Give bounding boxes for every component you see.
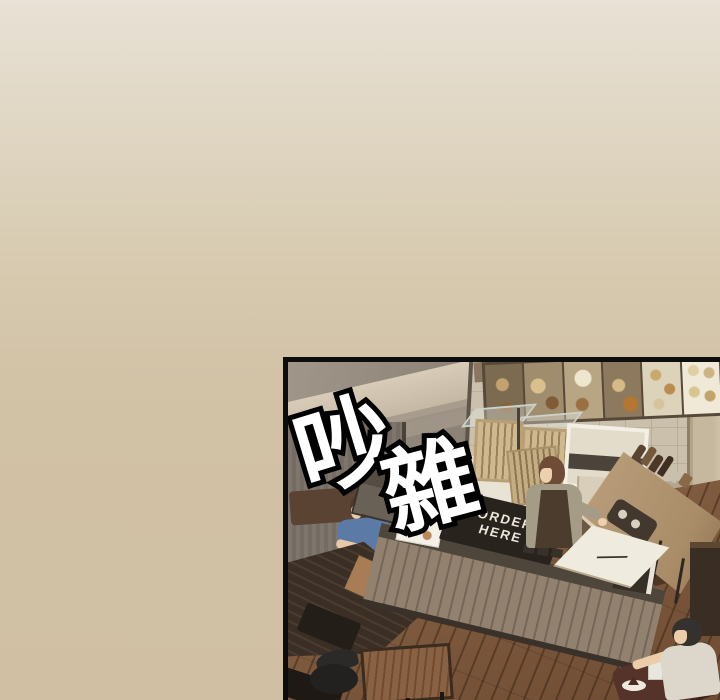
menu-board: [603, 358, 643, 418]
cafe-chair: [308, 650, 362, 700]
barista: [526, 456, 588, 552]
table-leg: [440, 692, 444, 700]
customer-shirt: [659, 640, 720, 700]
customer-face: [674, 630, 687, 644]
cake-plate: [622, 680, 646, 691]
comic-panel: ORDER HERE 吵: [283, 357, 720, 700]
cup: [616, 508, 628, 520]
menu-board: [642, 357, 682, 416]
barista-hand: [598, 518, 607, 526]
barista-apron: [535, 490, 573, 548]
cup: [629, 518, 641, 530]
barista-face: [540, 468, 552, 483]
sfx-text-noisy: 吵 吵 雜 雜: [292, 364, 492, 524]
pen: [597, 556, 628, 558]
menu-board: [681, 357, 720, 414]
chair-seat: [310, 664, 358, 694]
seated-customer: [654, 618, 720, 700]
